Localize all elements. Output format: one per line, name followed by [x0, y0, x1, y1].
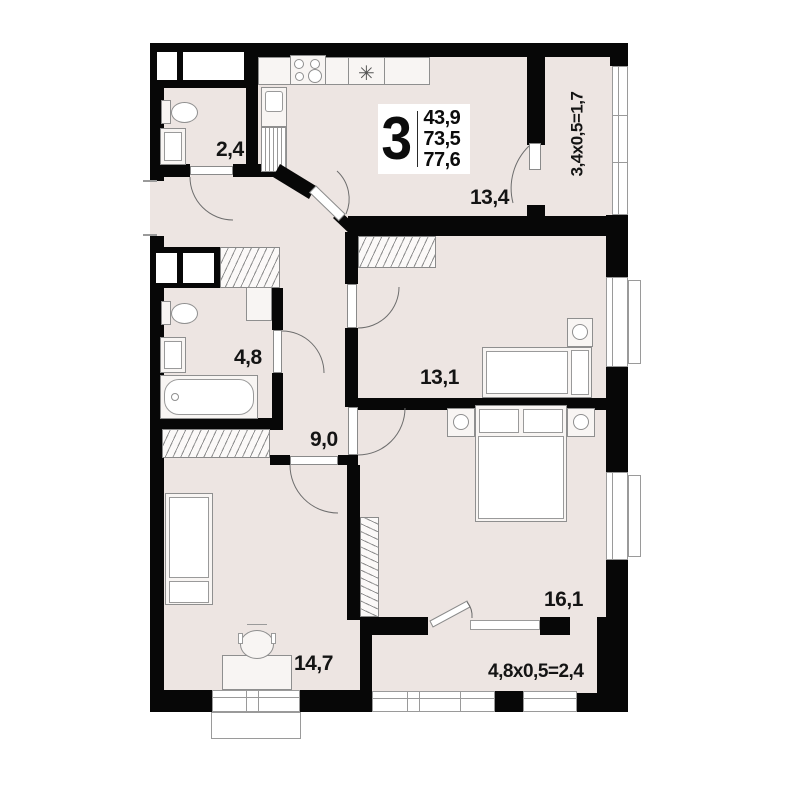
- stove-burner-1: [294, 59, 304, 69]
- bedroom3-nightstand-left-lamp: [453, 414, 469, 430]
- info-divider: [417, 111, 418, 167]
- balcony-area-label: 4,8x0,5=2,4: [488, 661, 583, 683]
- bedroom3-door-leaf: [348, 407, 358, 455]
- bath-toilet-tank: [161, 301, 171, 325]
- wc-sink-inner: [164, 132, 182, 161]
- kitchen-area-label: 13,4: [470, 186, 509, 210]
- total-area-value: 77,6: [423, 150, 460, 171]
- loggia-area-label: 3,4x0,5=1,7: [568, 77, 588, 192]
- desk-chair-armrest-right: [271, 633, 276, 644]
- bedroom3-pillow-left: [479, 409, 519, 433]
- bedroom2-window-tick1: [246, 690, 247, 712]
- bedroom1-window-line: [612, 277, 613, 367]
- desk: [222, 655, 292, 690]
- loggia-glazing-line: [618, 66, 619, 215]
- bedroom2-bed-mattress: [169, 497, 209, 578]
- bedroom1-nightstand-lamp: [572, 324, 588, 340]
- bedroom3-wardrobe: [360, 517, 379, 617]
- wc-toilet-tank: [161, 100, 171, 124]
- wall-corner-147: [338, 455, 358, 465]
- bedroom3-window: [606, 472, 628, 560]
- bathroom-door-leaf: [273, 330, 282, 373]
- fridge-inner: [265, 91, 283, 112]
- balcony-pier: [495, 691, 523, 712]
- wall-bottom-left: [150, 690, 212, 712]
- bath-toilet-bowl: [171, 303, 198, 324]
- bedroom2-window: [212, 690, 300, 712]
- wall-balcony-right: [597, 617, 628, 712]
- wall-corridor-right-upper: [345, 232, 358, 284]
- balcony-glazing-b: [523, 691, 577, 712]
- bedroom3-bed-mattress: [478, 436, 564, 519]
- loggia-glazing-div2: [612, 162, 628, 163]
- stove-burner-3: [295, 72, 304, 81]
- rooms-count: 3: [381, 109, 412, 169]
- bedroom1-bed-pillow: [571, 350, 589, 395]
- wc-toilet-bowl: [171, 102, 198, 123]
- balcony-glazing-a: [372, 691, 495, 712]
- wall-161-bottom-right: [540, 617, 570, 635]
- desk-chair-armrest-left: [238, 633, 243, 644]
- wall-balcony-right-bottom: [577, 693, 601, 712]
- entrance-opening-cap-top: [143, 180, 157, 182]
- bedroom1-wardrobe: [358, 236, 436, 268]
- bedroom3-window-line: [612, 472, 613, 560]
- bedroom1-area-label: 13,1: [420, 366, 459, 390]
- wc-door-leaf: [190, 166, 233, 175]
- sink-icon: ✳: [358, 61, 375, 86]
- entrance-opening-cap-bottom: [143, 234, 157, 236]
- kitchen-counter: [258, 57, 430, 85]
- bedroom2-window-line1: [212, 697, 300, 698]
- living-area-value: 43,9: [423, 108, 460, 129]
- desk-chair: [240, 630, 274, 659]
- shaft-a: [157, 52, 177, 80]
- bedroom3-window-sill: [628, 475, 641, 557]
- wall-kitchen-loggia-low: [527, 205, 545, 216]
- floorplan-canvas: ✳: [0, 0, 800, 800]
- wall-right-2: [606, 367, 628, 472]
- hallway-area-label: 9,0: [310, 428, 338, 452]
- bedroom2-wardrobe: [162, 429, 270, 458]
- wall-balcony-left: [360, 633, 372, 712]
- bedroom2-door-leaf: [290, 456, 338, 465]
- bedroom1-bed-mattress: [486, 351, 568, 394]
- loggia-glazing-div1: [612, 115, 628, 116]
- bedroom1-window: [606, 277, 628, 367]
- bedroom1-door-leaf: [347, 284, 357, 328]
- wall-bath-right-upper: [272, 288, 283, 330]
- bathroom-area-label: 4,8: [234, 346, 262, 370]
- apartment-area-value: 73,5: [423, 129, 460, 150]
- stove-burner-4: [308, 69, 322, 83]
- shaft-d: [183, 253, 214, 283]
- balcony-glazing-a-tick2: [419, 691, 420, 712]
- bedroom2-window-sill: [211, 712, 301, 739]
- shaft-b: [183, 52, 244, 80]
- shaft-c: [156, 253, 177, 283]
- desk-chair-back: [247, 624, 267, 625]
- stove-burner-2: [310, 59, 320, 69]
- bedroom3-nightstand-right-lamp: [573, 414, 589, 430]
- bedroom1-window-sill: [628, 280, 641, 364]
- hall-wardrobe: [220, 247, 280, 288]
- balcony-door-window: [470, 620, 540, 630]
- bedroom3-area-label: 16,1: [544, 588, 583, 612]
- wall-kitchen-bottom: [348, 216, 628, 236]
- bath-sink-inner: [164, 341, 182, 369]
- balcony-glazing-a-tick3: [460, 691, 461, 712]
- bedroom2-window-tick2: [258, 690, 259, 712]
- wall-147-161-divider: [347, 465, 360, 620]
- wc-area-label: 2,4: [216, 138, 244, 162]
- kitchen-cabinet: [261, 127, 287, 172]
- loggia-door-leaf: [529, 143, 541, 170]
- wall-wc-bottom-left: [150, 164, 190, 177]
- washing-machine: [246, 287, 272, 321]
- bathtub-drain: [171, 393, 179, 401]
- apartment-info-box: 3 43,9 73,5 77,6: [378, 104, 470, 174]
- bedroom2-area-label: 14,7: [294, 652, 333, 676]
- bedroom3-pillow-right: [523, 409, 563, 433]
- wall-wc-right: [246, 43, 258, 177]
- wall-corridor-right-lower: [345, 328, 358, 407]
- wall-147-door-left: [270, 455, 290, 465]
- balcony-glazing-b-line: [523, 698, 577, 699]
- wall-top-right-corner: [610, 43, 628, 66]
- bedroom2-bed-pillow: [169, 581, 209, 603]
- loggia-glazing: [612, 66, 628, 215]
- balcony-glazing-a-tick1: [407, 691, 408, 712]
- area-values: 43,9 73,5 77,6: [423, 108, 460, 171]
- balcony-glazing-a-line: [372, 698, 495, 699]
- wall-kitchen-loggia: [527, 57, 545, 145]
